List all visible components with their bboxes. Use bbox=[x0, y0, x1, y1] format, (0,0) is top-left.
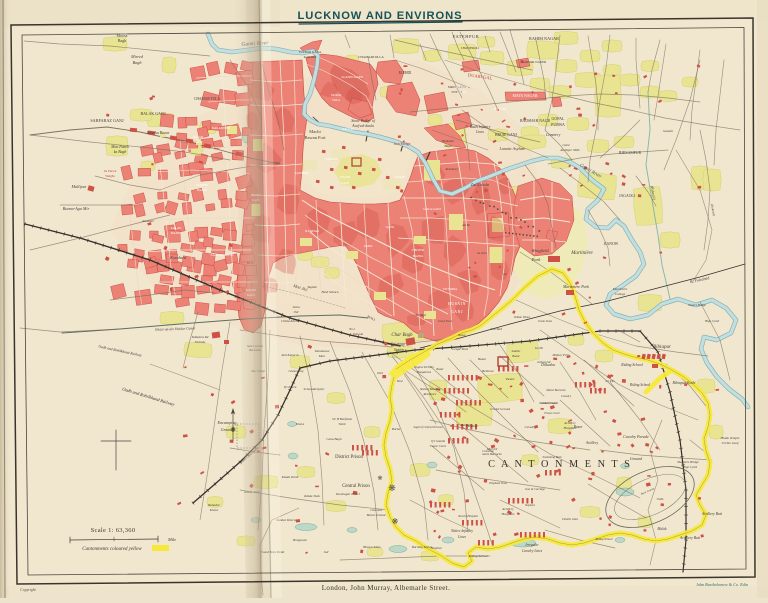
svg-text:KALANWER: KALANWER bbox=[212, 126, 231, 130]
svg-text:Cavalry Lines: Cavalry Lines bbox=[522, 549, 543, 553]
svg-text:GANJ: GANJ bbox=[341, 181, 350, 185]
svg-text:Cemetery: Cemetery bbox=[546, 133, 561, 137]
svg-text:VICTORIA: VICTORIA bbox=[443, 287, 458, 291]
svg-text:Stephens: Stephens bbox=[525, 504, 535, 507]
svg-text:Lines: Lines bbox=[475, 130, 484, 134]
svg-text:MAKUR: MAKUR bbox=[326, 157, 339, 161]
svg-text:Mirred: Mirred bbox=[130, 54, 144, 59]
svg-text:KAHATA: KAHATA bbox=[304, 55, 318, 59]
svg-text:High Cyred: High Cyred bbox=[682, 465, 697, 469]
svg-text:Jat Purwn: Jat Purwn bbox=[104, 169, 117, 173]
svg-text:C A N T O N M E N T S: C A N T O N M E N T S bbox=[488, 459, 632, 470]
svg-text:Mosc: Mosc bbox=[396, 380, 404, 383]
svg-text:Jion Yard: Jion Yard bbox=[490, 327, 502, 331]
svg-text:Weighs: Weighs bbox=[105, 174, 115, 178]
svg-text:Ground: Ground bbox=[630, 456, 643, 461]
svg-text:Railway: Railway bbox=[392, 343, 405, 347]
svg-text:Residence: Residence bbox=[423, 392, 438, 396]
svg-text:RAJAB: RAJAB bbox=[193, 135, 203, 139]
svg-text:Bungalows: Bungalows bbox=[417, 370, 432, 374]
svg-text:Native Infantry: Native Infantry bbox=[450, 529, 473, 533]
svg-text:BADSHAH NAGR: BADSHAH NAGR bbox=[520, 119, 551, 123]
svg-text:PURWA: PURWA bbox=[551, 122, 565, 127]
svg-text:Bawan Fort: Bawan Fort bbox=[304, 135, 326, 140]
svg-text:Riding School: Riding School bbox=[595, 537, 613, 541]
svg-text:BALAK GANJ: BALAK GANJ bbox=[141, 111, 166, 116]
svg-text:M EHDI: M EHDI bbox=[399, 71, 412, 75]
svg-text:Station Masters: Station Masters bbox=[420, 387, 441, 391]
svg-text:Burning Khera: Burning Khera bbox=[412, 545, 433, 549]
svg-text:Scale 1: 63,360: Scale 1: 63,360 bbox=[91, 527, 136, 534]
svg-text:Irregular: Irregular bbox=[524, 543, 539, 547]
svg-text:Mile: Mile bbox=[167, 537, 176, 542]
svg-text:Stone Bridge of: Stone Bridge of bbox=[351, 119, 376, 123]
svg-text:Anil Kanorra: Anil Kanorra bbox=[280, 353, 298, 357]
svg-text:Bazar: Bazar bbox=[436, 367, 444, 371]
svg-text:Copyright: Copyright bbox=[20, 588, 36, 592]
svg-text:Astomare: Astomare bbox=[141, 219, 155, 223]
svg-text:Burial Ground: Burial Ground bbox=[367, 513, 386, 517]
svg-text:Riding School: Riding School bbox=[467, 554, 487, 558]
svg-text:Char Bagh: Char Bagh bbox=[391, 333, 413, 338]
svg-text:Sir H Bunfields: Sir H Bunfields bbox=[332, 417, 352, 421]
svg-text:JIANOW: JIANOW bbox=[604, 242, 619, 246]
svg-text:Bellevue: Bellevue bbox=[482, 369, 494, 373]
svg-text:Burha: Burha bbox=[392, 427, 401, 431]
svg-text:FATEHPUR: FATEHPUR bbox=[453, 34, 479, 39]
svg-text:WAZIR: WAZIR bbox=[340, 175, 351, 179]
svg-text:Cavalry: Cavalry bbox=[525, 425, 536, 429]
svg-text:Central Prison: Central Prison bbox=[342, 484, 370, 489]
svg-text:Tamalawan: Tamalawan bbox=[315, 349, 330, 353]
svg-text:Moral Barracks: Moral Barracks bbox=[545, 388, 566, 392]
svg-text:Ice Pits: Ice Pits bbox=[604, 379, 615, 383]
svg-text:HASSAN: HASSAN bbox=[494, 107, 507, 111]
svg-text:Gosa Bagh: Gosa Bagh bbox=[326, 437, 341, 441]
svg-text:Hindu Temple: Hindu Temple bbox=[720, 436, 740, 440]
svg-text:Burgawan: Burgawan bbox=[293, 538, 307, 542]
svg-text:Cantonments coloured yellow: Cantonments coloured yellow bbox=[82, 547, 142, 552]
svg-text:CHOWK: CHOWK bbox=[412, 248, 425, 252]
svg-text:Tomb: Tomb bbox=[339, 422, 346, 426]
svg-text:Bunna-Aga Mir: Bunna-Aga Mir bbox=[63, 206, 90, 211]
svg-text:Q't Guards: Q't Guards bbox=[431, 439, 446, 443]
svg-text:Elephant Shed: Elephant Shed bbox=[488, 481, 507, 485]
svg-text:Bazar: Bazar bbox=[458, 333, 466, 337]
svg-text:Military Prisn: Military Prisn bbox=[551, 353, 570, 357]
svg-text:Artillery: Artillery bbox=[501, 507, 514, 511]
svg-text:Wingfield: Wingfield bbox=[531, 248, 549, 253]
svg-text:Budshah: Budshah bbox=[442, 139, 454, 143]
svg-text:❋: ❋ bbox=[377, 475, 382, 482]
svg-text:Iron Bridge: Iron Bridge bbox=[394, 142, 411, 146]
svg-text:Bhawa Khan: Bhawa Khan bbox=[363, 545, 381, 549]
svg-text:Talkatora Rd: Talkatora Rd bbox=[192, 335, 209, 339]
svg-text:Sudder: Sudder bbox=[511, 349, 521, 353]
svg-text:Riding School: Riding School bbox=[620, 363, 642, 367]
svg-text:Kusinagar Poleri: Kusinagar Poleri bbox=[335, 492, 360, 496]
svg-text:Bagh: Bagh bbox=[444, 144, 451, 148]
svg-text:Malak: Malak bbox=[656, 527, 667, 531]
svg-text:GANJ: GANJ bbox=[451, 310, 463, 314]
svg-text:Artillery: Artillery bbox=[585, 441, 599, 445]
svg-text:Gasaoli: Gasaoli bbox=[663, 129, 673, 133]
svg-text:Bagh: Bagh bbox=[118, 38, 126, 43]
svg-text:Schoonderpoor: Schoonderpoor bbox=[304, 387, 326, 391]
svg-text:RASUL: RASUL bbox=[457, 90, 467, 94]
svg-text:BAZAR: BAZAR bbox=[197, 188, 207, 192]
svg-text:Martinière Park: Martinière Park bbox=[562, 284, 589, 289]
svg-text:Mallipur: Mallipur bbox=[71, 184, 87, 189]
svg-text:No 2: No 2 bbox=[348, 327, 355, 331]
svg-text:Bibiapur: Bibiapur bbox=[653, 345, 671, 350]
svg-text:Theatre: Theatre bbox=[505, 377, 515, 381]
svg-text:JAGAOLI: JAGAOLI bbox=[619, 194, 636, 198]
svg-text:College: College bbox=[615, 292, 626, 296]
svg-text:Nat Inf Hospital: Nat Inf Hospital bbox=[457, 514, 478, 518]
svg-text:Zad Kalasha: Zad Kalasha bbox=[471, 183, 490, 187]
svg-text:Comeline: Comeline bbox=[482, 449, 494, 453]
svg-text:BHISAMPUR: BHISAMPUR bbox=[619, 151, 642, 155]
svg-text:Hospitals: Hospitals bbox=[563, 426, 578, 430]
svg-text:SAIDAR NASER: SAIDAR NASER bbox=[522, 60, 547, 64]
svg-text:FUZBAR KANA: FUZBAR KANA bbox=[299, 50, 322, 54]
svg-text:Oudh: Oudh bbox=[657, 497, 664, 501]
svg-text:Jail: Jail bbox=[324, 550, 329, 554]
svg-text:Bazar: Bazar bbox=[478, 357, 487, 361]
svg-text:Foora Court: Foora Court bbox=[543, 411, 559, 415]
svg-text:Jan: Jan bbox=[503, 273, 508, 276]
svg-text:High Cyred: High Cyred bbox=[704, 319, 719, 323]
svg-text:Cavalry Parade: Cavalry Parade bbox=[623, 434, 649, 439]
svg-text:Lunatic Asylum: Lunatic Asylum bbox=[499, 146, 525, 151]
svg-text:Bauls Infantry: Bauls Infantry bbox=[470, 125, 491, 129]
svg-text:Tedian Wines: Tedian Wines bbox=[514, 315, 531, 319]
svg-text:MARTIN: MARTIN bbox=[196, 183, 208, 187]
svg-text:Klada Tomb: Klada Tomb bbox=[281, 475, 299, 479]
svg-text:Grape Yard: Grape Yard bbox=[452, 347, 468, 351]
svg-text:Artillery Butt: Artillery Butt bbox=[679, 536, 701, 540]
svg-text:Residency: Residency bbox=[445, 167, 460, 171]
svg-text:Encamping: Encamping bbox=[216, 420, 236, 425]
svg-text:GARHI: GARHI bbox=[395, 175, 405, 179]
svg-text:Gumi: Gumi bbox=[562, 143, 569, 147]
svg-text:Maratich: Maratich bbox=[459, 423, 472, 427]
svg-text:Lines: Lines bbox=[457, 535, 466, 539]
svg-text:Foose Court: Foose Court bbox=[429, 444, 446, 448]
svg-text:GANJ: GANJ bbox=[194, 140, 203, 144]
svg-text:GOPAL: GOPAL bbox=[552, 116, 566, 121]
svg-text:Husb Silonca: Husb Silonca bbox=[320, 290, 338, 294]
svg-text:Park: Park bbox=[531, 257, 542, 262]
svg-text:Kondura: Kondura bbox=[169, 255, 187, 260]
svg-text:Ak Paper Mills: Ak Paper Mills bbox=[559, 148, 580, 152]
svg-text:SARFARAZ GANJ: SARFARAZ GANJ bbox=[90, 118, 124, 123]
svg-text:Jhil: Jhil bbox=[294, 310, 299, 314]
svg-text:SAADAT GANJ: SAADAT GANJ bbox=[211, 253, 235, 257]
svg-text:Tyt Khera: Tyt Khera bbox=[284, 385, 297, 389]
svg-text:Bibiapur Kothi: Bibiapur Kothi bbox=[673, 381, 696, 385]
svg-text:Gram Lines: Gram Lines bbox=[538, 319, 553, 323]
svg-text:HUSAIN: HUSAIN bbox=[448, 302, 466, 306]
svg-text:Bagh: Bagh bbox=[133, 60, 142, 65]
svg-text:Khera: Khera bbox=[295, 422, 305, 426]
svg-text:GOLA GANJ: GOLA GANJ bbox=[423, 207, 441, 211]
svg-text:KASHMIRI: KASHMIRI bbox=[295, 171, 310, 175]
svg-text:CHAMAR TOLA: CHAMAR TOLA bbox=[194, 97, 221, 101]
svg-text:Klada Touk: Klada Touk bbox=[303, 494, 320, 498]
svg-text:Artillery: Artillery bbox=[563, 421, 576, 425]
svg-text:MORAI: MORAI bbox=[331, 93, 341, 97]
svg-text:Omi Yard: Omi Yard bbox=[414, 313, 426, 317]
svg-text:DAULAT: DAULAT bbox=[342, 127, 354, 131]
svg-text:❋: ❋ bbox=[392, 517, 399, 526]
svg-text:Kaveka Bazar: Kaveka Bazar bbox=[146, 130, 170, 135]
svg-text:KADAM: KADAM bbox=[456, 85, 468, 89]
svg-text:Forbabs: Forbabs bbox=[194, 340, 207, 344]
svg-text:Ice Ho: Ice Ho bbox=[534, 346, 544, 350]
svg-text:Sagit of Central Prisons: Sagit of Central Prisons bbox=[413, 425, 443, 429]
svg-text:Engine Drivers: Engine Drivers bbox=[413, 365, 434, 369]
svg-text:District Prison: District Prison bbox=[335, 455, 363, 460]
svg-text:Machi: Machi bbox=[309, 129, 321, 134]
svg-text:Cricket Ground: Cricket Ground bbox=[490, 407, 510, 411]
svg-text:Kulwula: Kulwula bbox=[352, 332, 364, 336]
svg-text:London, John Murray, Albemarle: London, John Murray, Albemarle Street. bbox=[322, 584, 450, 592]
svg-text:Riding School: Riding School bbox=[629, 383, 650, 387]
svg-text:LUCKNOW AND ENVIRONS: LUCKNOW AND ENVIRONS bbox=[298, 10, 463, 22]
svg-text:Taghab: Taghab bbox=[307, 285, 317, 289]
svg-text:John Bartholomew & Co. Edin: John Bartholomew & Co. Edin bbox=[696, 582, 748, 587]
svg-text:Gun & Carriage: Gun & Carriage bbox=[525, 487, 546, 491]
svg-text:Martinière: Martinière bbox=[570, 251, 593, 256]
svg-text:Jeena: Jeena bbox=[292, 305, 300, 309]
svg-text:Bazar: Bazar bbox=[512, 354, 520, 358]
svg-text:Urchin Ganj: Urchin Ganj bbox=[721, 441, 738, 445]
svg-text:Dhobis Ghat: Dhobis Ghat bbox=[561, 517, 578, 521]
svg-text:RAHIM NAGAR: RAHIM NAGAR bbox=[529, 36, 559, 41]
svg-text:Ghousgunj: Ghousgunj bbox=[289, 369, 304, 373]
svg-text:Swimming Bath: Swimming Bath bbox=[543, 455, 562, 459]
svg-text:Sa Lines: Sa Lines bbox=[477, 252, 487, 255]
svg-text:TOLA: TOLA bbox=[332, 98, 341, 102]
svg-text:BAZRA: BAZRA bbox=[413, 254, 425, 258]
svg-text:Jailwah Stc: Jailwah Stc bbox=[537, 360, 552, 364]
svg-text:Wagers Bridge: Wagers Bridge bbox=[688, 303, 706, 307]
svg-text:MANDI: MANDI bbox=[171, 231, 182, 235]
svg-text:Grass Farm: Grass Farm bbox=[438, 319, 453, 323]
svg-text:Bahadur: Bahadur bbox=[208, 503, 221, 507]
svg-text:Am Bd: Am Bd bbox=[461, 224, 470, 227]
svg-text:GLAZED GARH: GLAZED GARH bbox=[341, 75, 363, 79]
svg-text:CHATTEROLI: CHATTEROLI bbox=[461, 46, 480, 50]
svg-text:Cawnied: Cawnied bbox=[370, 508, 382, 512]
svg-text:Cavalry: Cavalry bbox=[561, 394, 572, 398]
svg-text:MAYA NAGAR: MAYA NAGAR bbox=[512, 94, 538, 98]
svg-text:Mow: Mow bbox=[318, 354, 326, 358]
svg-text:✺: ✺ bbox=[230, 426, 236, 434]
svg-text:CHAMARTOLLA: CHAMARTOLLA bbox=[358, 55, 384, 59]
svg-text:❋: ❋ bbox=[388, 483, 396, 493]
svg-text:Crohd Ormind: Crohd Ormind bbox=[540, 401, 558, 405]
svg-text:BROIE GANJ: BROIE GANJ bbox=[495, 133, 518, 137]
svg-text:NAKHAS: NAKHAS bbox=[305, 229, 319, 233]
svg-text:LALAY: LALAY bbox=[171, 226, 182, 230]
svg-text:Word: Word bbox=[377, 372, 383, 375]
svg-text:Artillery Butt: Artillery Butt bbox=[701, 512, 723, 516]
svg-text:GANJ: GANJ bbox=[386, 225, 395, 229]
svg-text:Khera: Khera bbox=[209, 508, 219, 512]
svg-text:Martinière: Martinière bbox=[612, 287, 628, 291]
svg-text:ka Bagh: ka Bagh bbox=[114, 150, 127, 154]
svg-text:Hospitals: Hospitals bbox=[501, 512, 516, 516]
svg-text:AMIN: AMIN bbox=[363, 244, 373, 248]
svg-text:Magmers Bridge: Magmers Bridge bbox=[676, 460, 699, 464]
svg-text:Asaf-ud-daula: Asaf-ud-daula bbox=[351, 124, 374, 128]
svg-text:Chitta Khera: Chitta Khera bbox=[281, 319, 299, 323]
svg-text:Station: Station bbox=[394, 348, 404, 352]
svg-text:Moti Panek: Moti Panek bbox=[110, 145, 129, 149]
